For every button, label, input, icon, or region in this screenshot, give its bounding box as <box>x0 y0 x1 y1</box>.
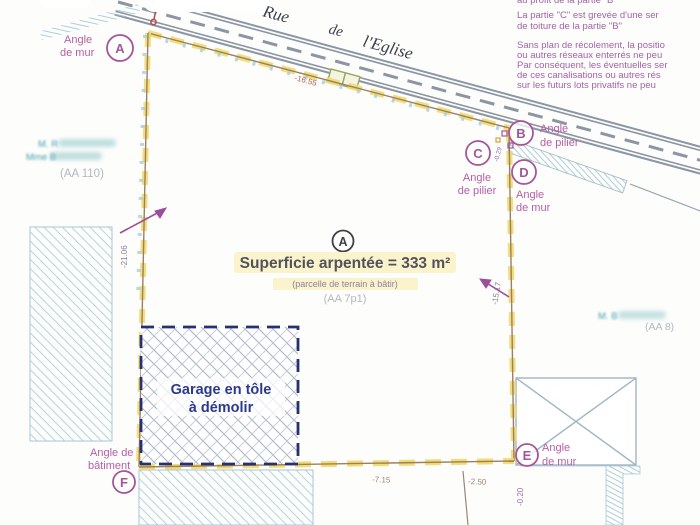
note-line: de toiture de la partie "B" <box>517 21 622 32</box>
point-letter: A <box>115 41 125 56</box>
neighbor-right-info: M. B (AA 8) <box>598 311 674 333</box>
point-label: de mur <box>60 47 95 59</box>
redaction-blob <box>40 0 90 8</box>
point-letter: B <box>516 126 525 141</box>
area-label: Superficie arpentée = 333 m² <box>240 255 451 272</box>
neighbor-name: M. R <box>38 139 58 150</box>
point-label: Angle <box>542 442 570 454</box>
note-line-clipped: au profit de la partie "B" <box>517 0 617 6</box>
point-label: Angle <box>516 189 544 201</box>
note-line: La partie "C" est grevée d'une ser <box>517 10 659 21</box>
point-letter: D <box>519 165 528 180</box>
point-label: bâtiment <box>88 460 130 472</box>
neighbor-ref: (AA 110) <box>60 168 104 180</box>
point-label: Angle <box>540 123 568 135</box>
measurement-bottom-2: -2.50 <box>468 477 487 487</box>
notes-block: au profit de la partie "B" La partie "C"… <box>517 0 668 91</box>
point-label: Angle de <box>90 447 133 459</box>
area-subtitle: (parcelle de terrain à bâtir) <box>292 279 398 289</box>
redacted-name-blur <box>58 139 116 147</box>
redaction-blob <box>143 0 269 12</box>
point-letter: F <box>120 475 128 490</box>
neighbor-name: M. B <box>598 311 618 322</box>
redacted-name-blur <box>50 152 102 160</box>
parcel-info: A Superficie arpentée = 333 m² (parcelle… <box>234 231 456 306</box>
point-label: de pilier <box>458 185 497 197</box>
point-letter: C <box>473 146 483 161</box>
redacted-name-blur <box>618 311 666 319</box>
point-label: de mur <box>516 202 551 214</box>
point-marker-c: C Angle de pilier <box>458 141 497 197</box>
survey-plan-page: Garage en tôle à démolir Rue de l'Eglise… <box>0 0 700 525</box>
neighbor-ref: (AA 8) <box>645 321 674 333</box>
wall-line-continuation <box>630 184 700 212</box>
measurement-right: -15.17 <box>490 281 503 305</box>
measurement-e-offset: -0.20 <box>516 487 525 506</box>
neighbor-wall-hatch-right <box>520 466 640 525</box>
measurement-bottom-1: -7.15 <box>372 475 391 485</box>
point-label: de mur <box>542 456 577 468</box>
point-marker-d: D Angle de mur <box>512 160 551 214</box>
point-label: de pilier <box>540 137 579 149</box>
garage-label: à démolir <box>189 400 254 416</box>
parcel-letter: A <box>338 235 347 249</box>
garage-label: Garage en tôle <box>171 382 272 398</box>
plan-canvas: Garage en tôle à démolir Rue de l'Eglise… <box>0 0 700 525</box>
point-label: Angle <box>463 172 491 184</box>
neighbor-parcel-hatch-left <box>30 227 112 441</box>
note-line: sur les futurs lots privatifs ne peu <box>517 80 656 91</box>
point-marker-f: F Angle de bâtiment <box>88 447 135 493</box>
point-marker-a: A Angle de mur <box>60 34 133 61</box>
garage-area: Garage en tôle à démolir <box>141 327 298 464</box>
point-letter: E <box>523 448 532 463</box>
neighbor-left-info: M. R Mme B (AA 110) <box>26 139 116 180</box>
street-name-word: l'Eglise <box>361 32 415 64</box>
measurement-left: -21.06 <box>120 245 129 268</box>
street-name-word: de <box>327 21 345 40</box>
parcel-ref: (AA 7p1) <box>324 293 367 305</box>
point-label: Angle <box>64 34 92 46</box>
neighbor-parcel-hatch-bottom <box>139 470 313 525</box>
street-name: Rue de l'Eglise <box>260 1 415 63</box>
measurement-c-offset: -0.29 <box>493 146 504 162</box>
